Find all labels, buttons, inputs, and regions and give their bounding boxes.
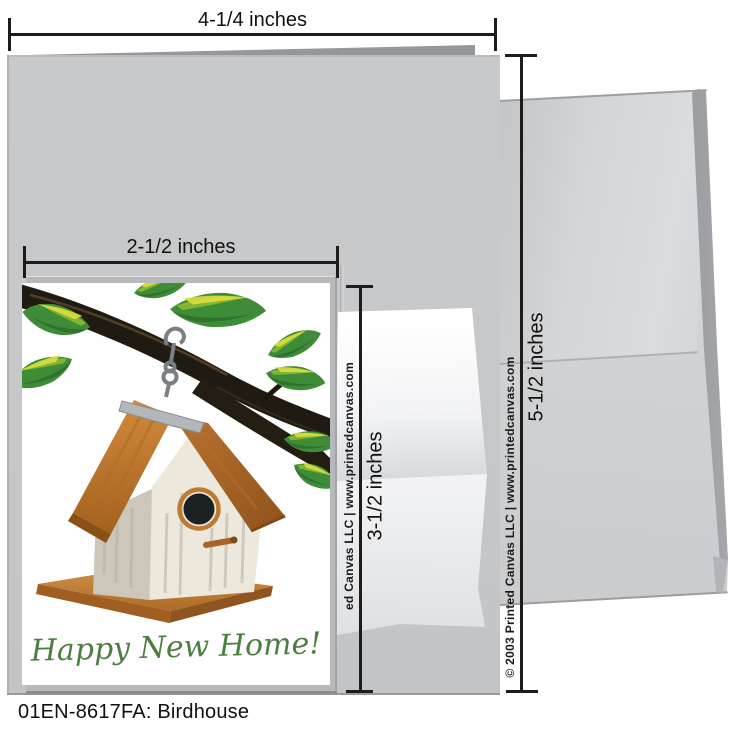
entrance-hole bbox=[184, 494, 215, 525]
product-image: Happy New Home! 4-1/4 inches 2-1/2 inche… bbox=[0, 0, 738, 738]
insert-paper-top bbox=[332, 302, 504, 487]
birdhouse bbox=[36, 400, 285, 623]
measure-line-full-width bbox=[8, 33, 497, 36]
measure-line-front-height bbox=[359, 285, 362, 693]
product-caption: 01EN-8617FA: Birdhouse bbox=[18, 701, 249, 724]
measure-tick bbox=[506, 690, 538, 693]
birdhouse-painting bbox=[22, 283, 330, 685]
measure-line-front-width bbox=[23, 261, 339, 264]
measure-label-front-width: 2-1/2 inches bbox=[23, 236, 339, 259]
measure-label-front-height: 3-1/2 inches bbox=[365, 432, 388, 541]
measure-tick bbox=[505, 54, 537, 57]
small-card-front: Happy New Home! bbox=[22, 283, 330, 685]
measure-tick bbox=[494, 18, 497, 51]
measure-label-full-width: 4-1/4 inches bbox=[8, 9, 497, 32]
measure-line-full-height bbox=[520, 54, 523, 693]
measure-tick bbox=[23, 246, 26, 278]
watermark-inner: ed Canvas LLC | www.printedcanvas.com bbox=[342, 362, 356, 610]
measure-label-full-height: 5-1/2 inches bbox=[526, 313, 549, 422]
measure-tick bbox=[346, 285, 373, 288]
insert-paper-edge bbox=[340, 266, 344, 314]
measure-tick bbox=[8, 18, 11, 51]
insert-paper bbox=[332, 302, 504, 642]
watermark-outer: © 2003 Printed Canvas LLC | www.printedc… bbox=[503, 356, 517, 677]
measure-tick bbox=[346, 690, 373, 693]
measure-tick bbox=[336, 246, 339, 278]
